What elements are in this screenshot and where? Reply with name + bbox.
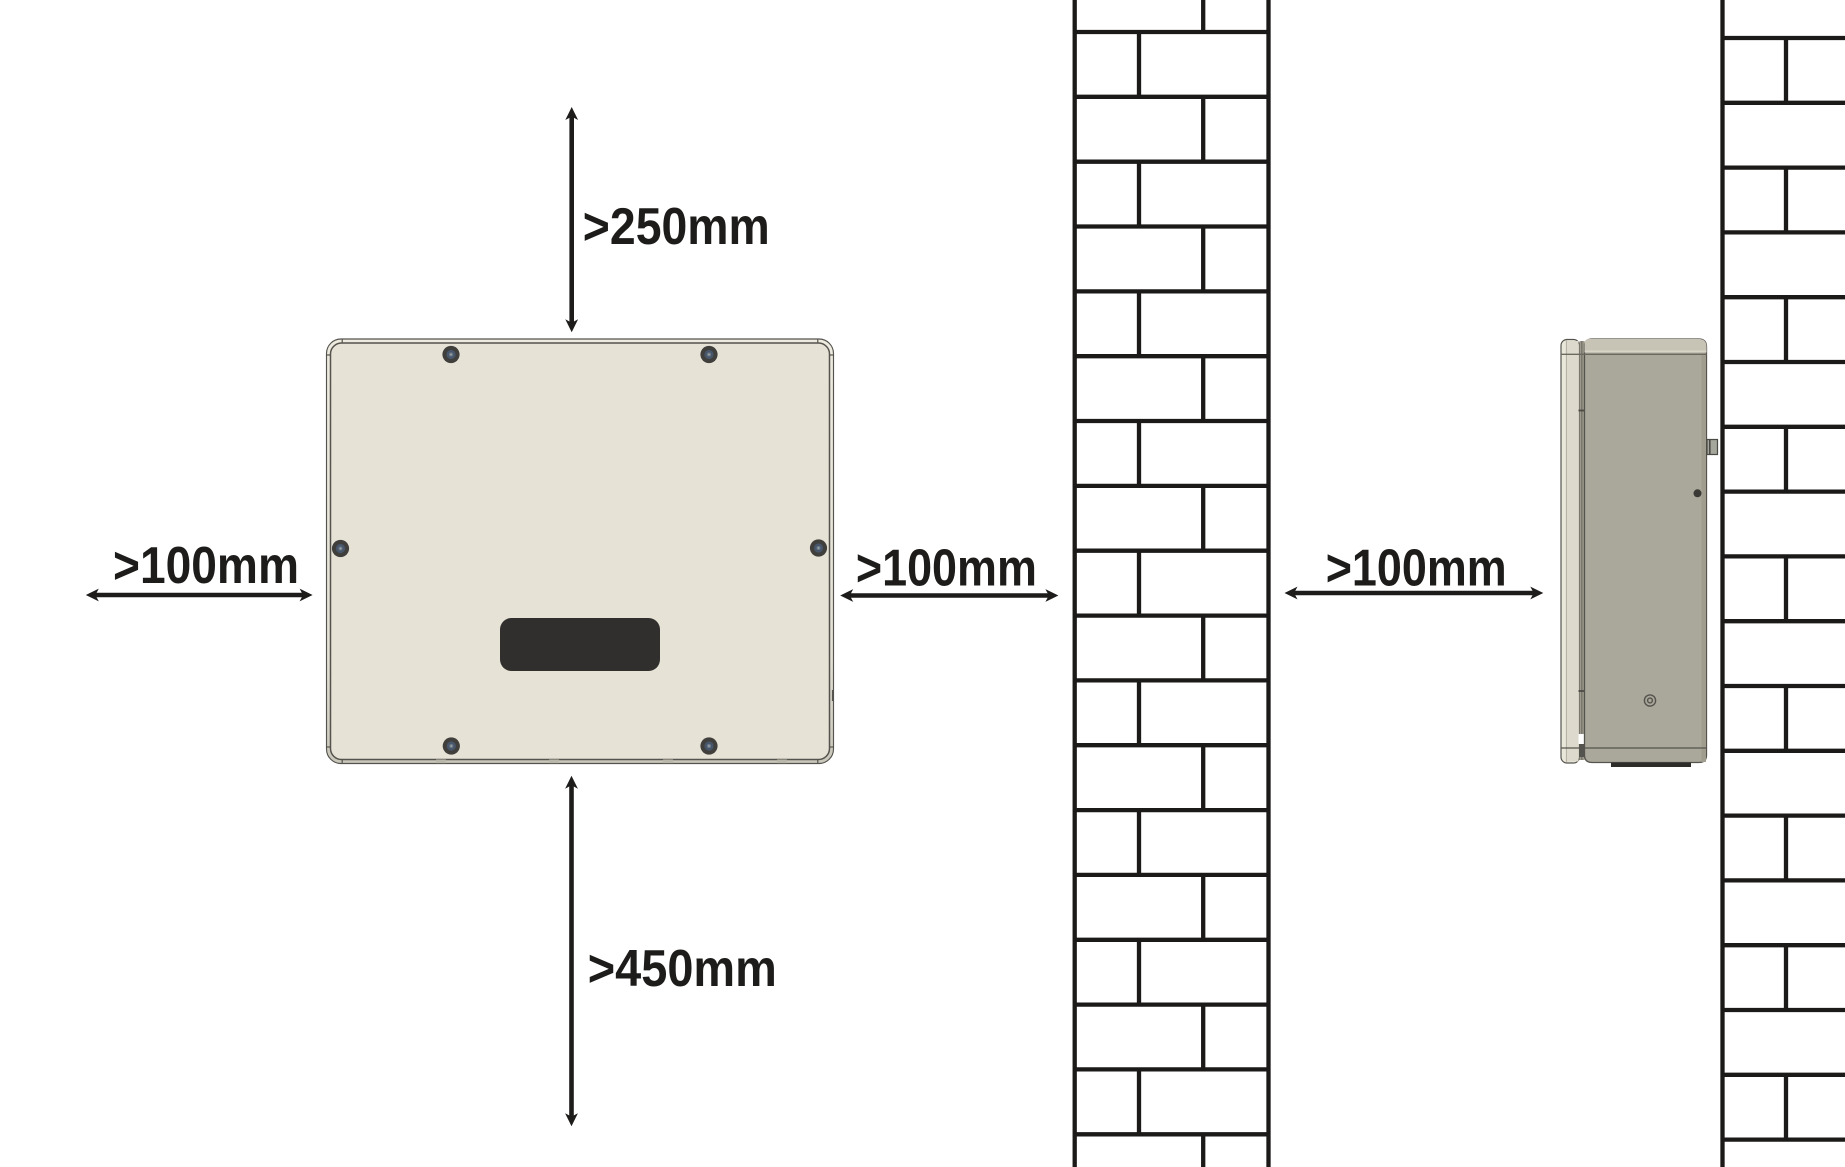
- svg-text:>450mm: >450mm: [588, 940, 777, 998]
- svg-text:>100mm: >100mm: [113, 537, 299, 595]
- svg-text:>250mm: >250mm: [583, 198, 770, 256]
- svg-text:>100mm: >100mm: [856, 540, 1037, 598]
- svg-text:>100mm: >100mm: [1326, 540, 1507, 598]
